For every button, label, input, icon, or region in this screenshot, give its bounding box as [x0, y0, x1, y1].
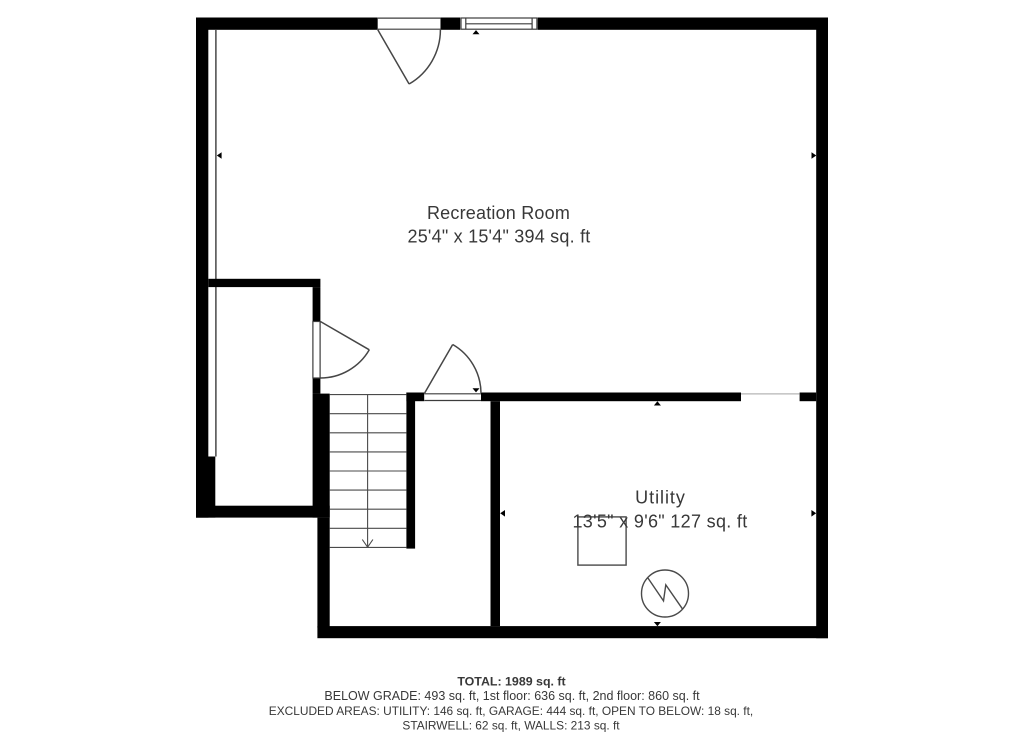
svg-text:Recreation Room: Recreation Room	[427, 203, 570, 223]
svg-text:TOTAL: 1989 sq. ft: TOTAL: 1989 sq. ft	[457, 674, 565, 688]
svg-text:13'5" x 9'6" 127 sq. ft: 13'5" x 9'6" 127 sq. ft	[572, 512, 747, 532]
svg-text:STAIRWELL: 62 sq. ft, WALLS: 2: STAIRWELL: 62 sq. ft, WALLS: 213 sq. ft	[402, 718, 620, 732]
svg-text:Utility: Utility	[635, 488, 686, 508]
svg-text:25'4" x 15'4" 394 sq. ft: 25'4" x 15'4" 394 sq. ft	[407, 227, 590, 247]
svg-text:EXCLUDED AREAS: UTILITY: 146 s: EXCLUDED AREAS: UTILITY: 146 sq. ft, GAR…	[269, 704, 753, 718]
svg-text:BELOW GRADE: 493 sq. ft, 1st f: BELOW GRADE: 493 sq. ft, 1st floor: 636 …	[324, 689, 700, 703]
